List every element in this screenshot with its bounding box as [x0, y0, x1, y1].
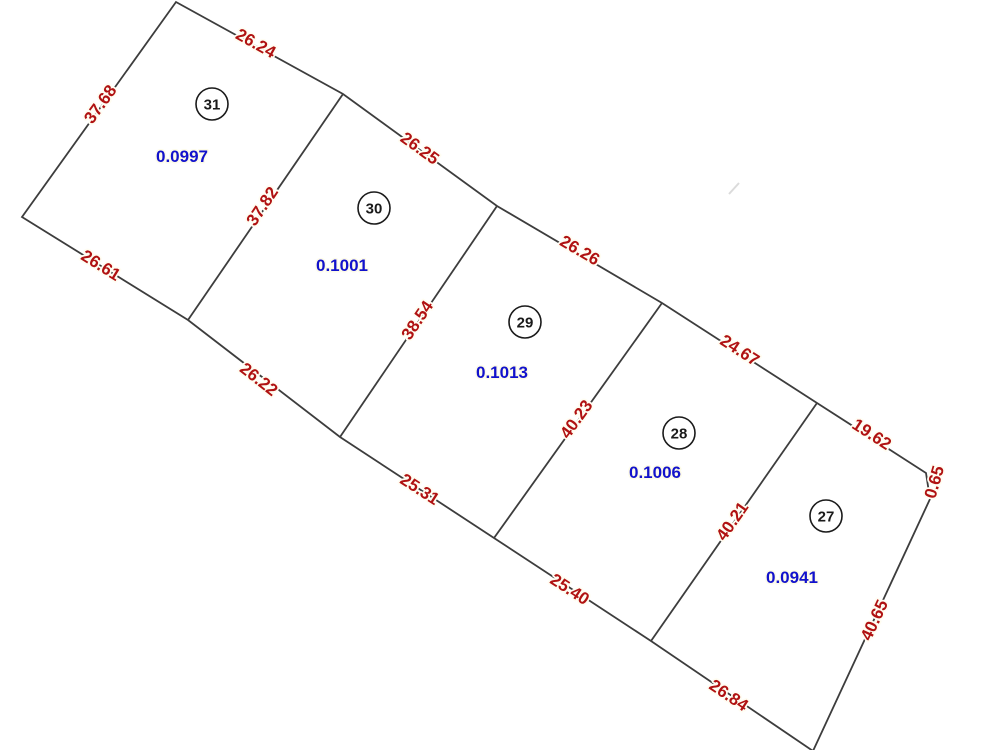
lot-area-label-31: 0.0997 [156, 147, 208, 166]
lot-number-badge-29: 29 [509, 306, 541, 338]
dimension-label-top-right: 0.65 [921, 464, 948, 501]
lot-number-text: 29 [517, 314, 534, 331]
lot-number-text: 28 [671, 425, 688, 442]
lot-number-badge-30: 30 [358, 192, 390, 224]
lot-area-label-30: 0.1001 [316, 256, 368, 275]
lot-number-text: 27 [818, 508, 835, 525]
lot-area-label-27: 0.0941 [766, 568, 818, 587]
lot-number-badge-27: 27 [810, 500, 842, 532]
lot-area-label-28: 0.1006 [629, 463, 681, 482]
lot-number-text: 30 [366, 200, 383, 217]
scan-artifact-mark [729, 183, 739, 194]
lot-number-badge-31: 31 [196, 88, 228, 120]
plat-diagram: 26.24 26.25 26.26 24.67 19.62 0.65 40.65… [0, 0, 1000, 750]
plat-canvas: 26.24 26.25 26.26 24.67 19.62 0.65 40.65… [0, 0, 1000, 750]
lot-number-badge-28: 28 [663, 417, 695, 449]
lot-number-text: 31 [204, 96, 221, 113]
lot-area-label-29: 0.1013 [476, 363, 528, 382]
